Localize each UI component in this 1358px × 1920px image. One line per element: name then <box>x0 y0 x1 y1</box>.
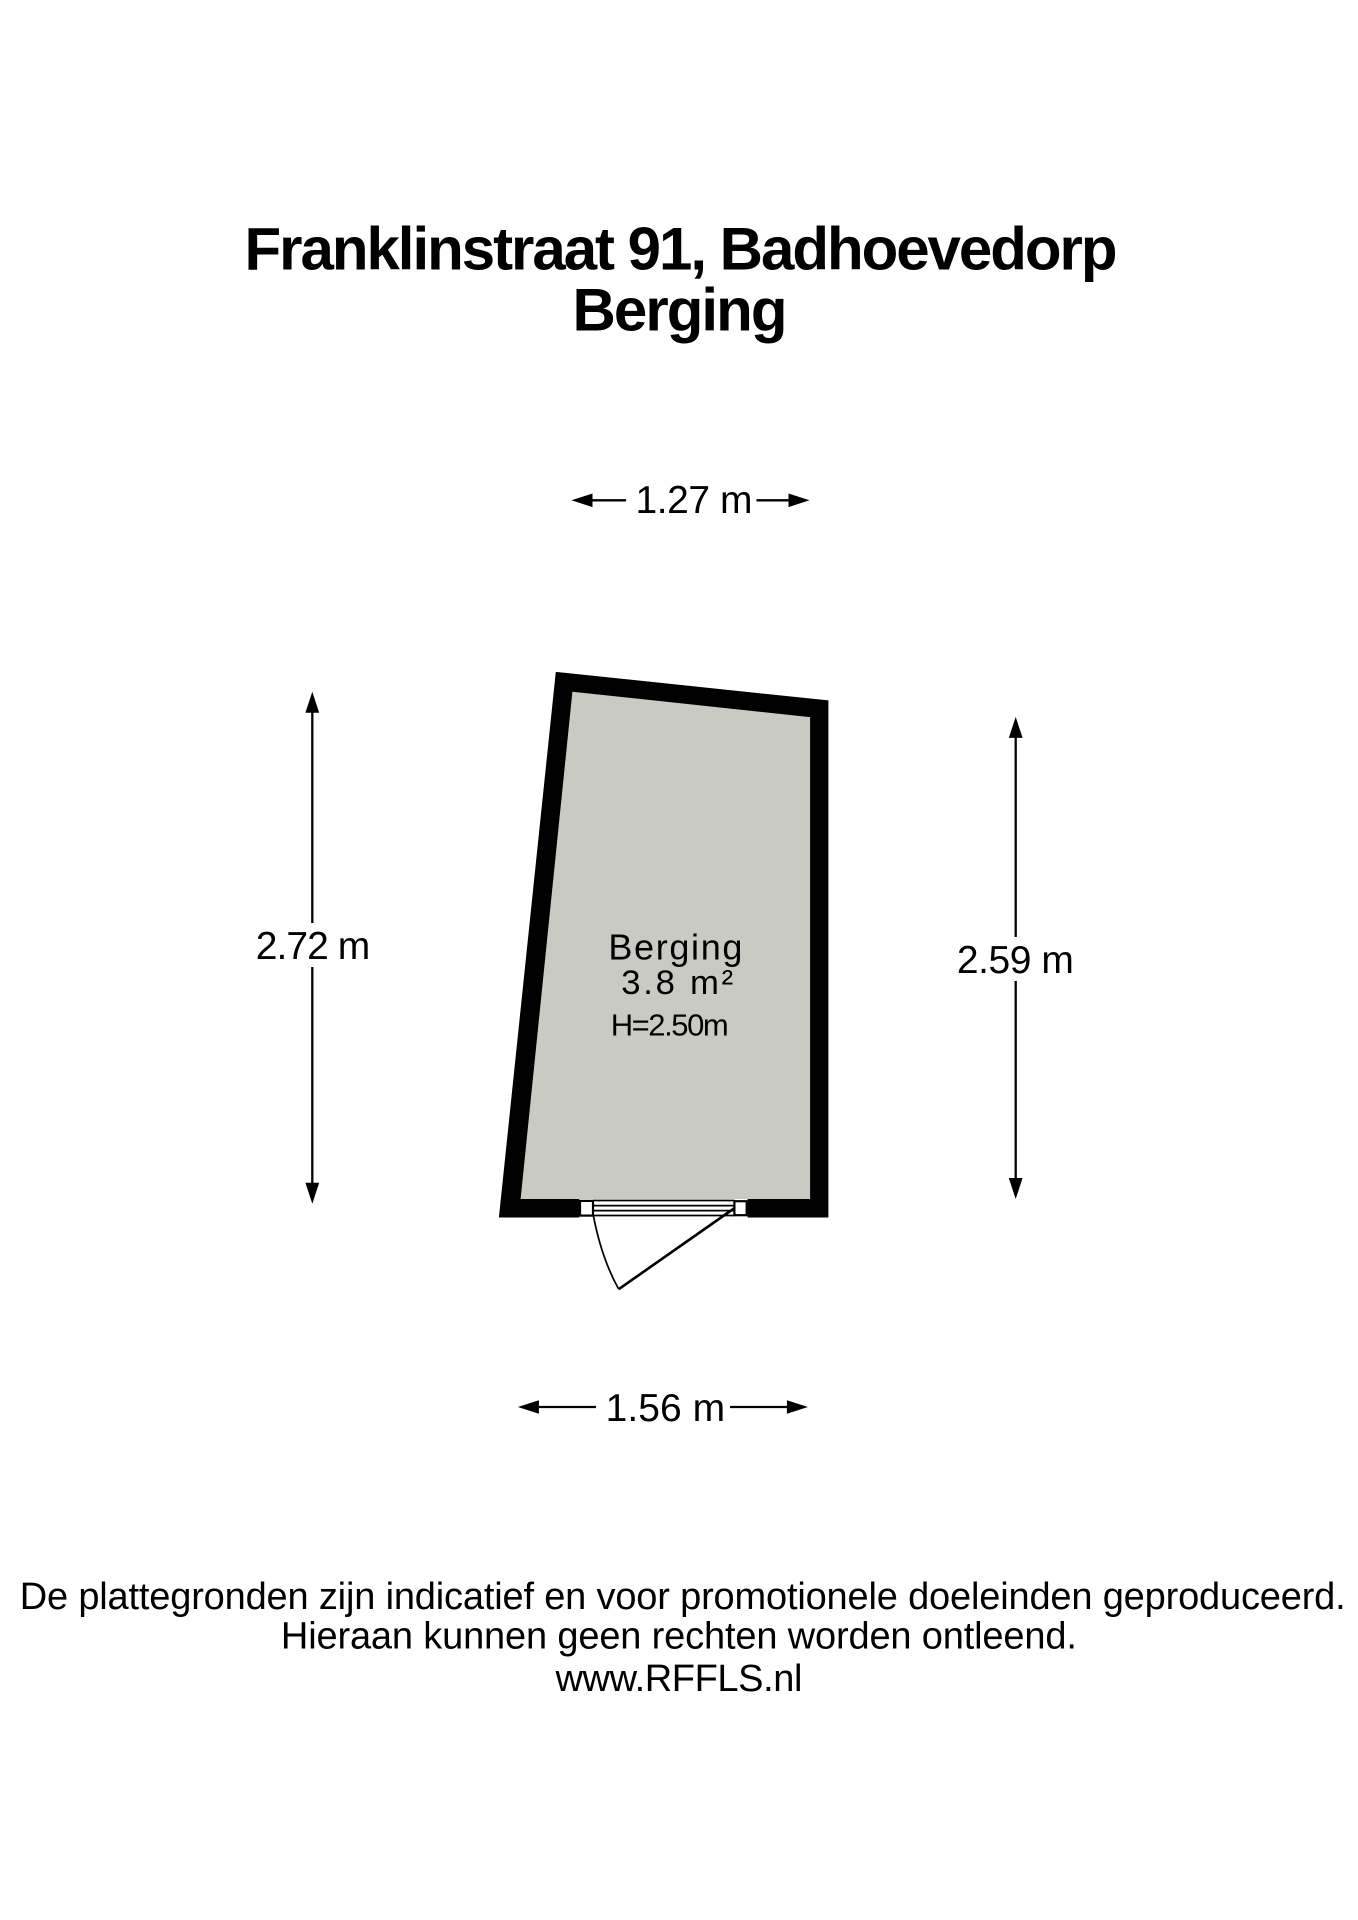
svg-text:2.72 m: 2.72 m <box>256 925 371 968</box>
svg-text:H=2.50m: H=2.50m <box>611 1007 729 1042</box>
svg-text:De plattegronden zijn indicati: De plattegronden zijn indicatief en voor… <box>20 1576 1346 1618</box>
svg-text:Franklinstraat 91, Badhoevedor: Franklinstraat 91, Badhoevedorp <box>245 216 1118 283</box>
svg-text:2.59 m: 2.59 m <box>957 939 1074 982</box>
svg-text:Berging: Berging <box>573 277 788 344</box>
svg-text:1.27 m: 1.27 m <box>636 479 753 522</box>
svg-text:Hieraan kunnen geen rechten wo: Hieraan kunnen geen rechten worden ontle… <box>281 1616 1077 1658</box>
svg-text:1.56 m: 1.56 m <box>606 1387 726 1430</box>
svg-text:3.8 m²: 3.8 m² <box>621 964 733 1002</box>
svg-text:www.RFFLS.nl: www.RFFLS.nl <box>555 1658 803 1700</box>
svg-text:Berging: Berging <box>608 927 742 968</box>
